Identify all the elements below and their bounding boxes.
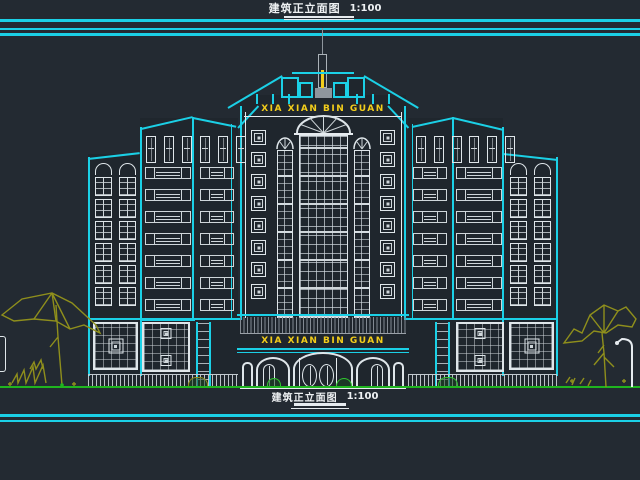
banded-window-row (413, 167, 502, 179)
band-window (413, 299, 447, 311)
banded-window-row (145, 277, 234, 289)
tree-right-icon (560, 295, 640, 390)
canopy-top-line (237, 314, 409, 316)
revolving-door-icon (302, 364, 317, 387)
tower-medallion (251, 174, 266, 189)
top-floor-window-group (469, 136, 515, 163)
banded-window-rows-right (413, 167, 502, 311)
stacked-window (510, 243, 527, 262)
stacked-window (119, 287, 136, 306)
flagpole-base-icon (315, 88, 332, 98)
band-window (456, 167, 502, 179)
band-window (200, 255, 234, 267)
revolving-door-icon (319, 364, 334, 387)
flagpole-antenna-icon (322, 28, 323, 55)
street-lamp-icon (618, 339, 632, 387)
medallion-column-left (251, 130, 266, 299)
sheet-border-line-top-3 (0, 33, 640, 36)
cad-elevation-canvas: 建筑正立面图 1:100 XIA XIAN BIN (0, 0, 640, 480)
tower-medallion (251, 152, 266, 167)
stacked-window (95, 177, 112, 196)
double-hung-window (487, 136, 497, 163)
tower-medallion (251, 262, 266, 277)
band-window (200, 167, 234, 179)
band-window (200, 211, 234, 223)
stacked-window (119, 265, 136, 284)
band-window (145, 233, 191, 245)
double-hung-window (182, 136, 192, 163)
podium-top-band (141, 318, 195, 321)
top-floor-window-group (416, 136, 462, 163)
band-window (200, 189, 234, 201)
outer-wing-edge-right (556, 157, 558, 376)
banded-window-row (145, 167, 234, 179)
band-window (200, 233, 234, 245)
tower-edge-right (404, 106, 406, 320)
stair-window-column (277, 150, 293, 318)
podium-medallion (475, 355, 486, 366)
banded-window-rows-left (145, 167, 234, 311)
tower-medallion (380, 240, 395, 255)
lamp-fragment-icon (0, 336, 6, 372)
band-window (456, 277, 502, 289)
stacked-window (534, 199, 551, 218)
parapet-block (299, 82, 313, 98)
band-window (413, 277, 447, 289)
stacked-window (534, 177, 551, 196)
medallion-column-right (380, 130, 395, 299)
stacked-window (510, 177, 527, 196)
tower-medallion (380, 152, 395, 167)
banded-window-row (413, 277, 502, 289)
tower-medallion (251, 284, 266, 299)
banded-window-row (413, 233, 502, 245)
title-underline-thin (284, 19, 354, 20)
tower-medallion (251, 218, 266, 233)
band-window (145, 277, 191, 289)
parapet-block (281, 77, 299, 98)
band-window (145, 189, 191, 201)
double-hung-window (505, 136, 515, 163)
arcade-arch (393, 362, 404, 388)
stacked-window (510, 221, 527, 240)
double-hung-window (200, 136, 210, 163)
band-window (200, 277, 234, 289)
double-hung-window (452, 136, 462, 163)
band-window (413, 255, 447, 267)
stacked-window-column (510, 177, 527, 306)
attic-tick (256, 94, 258, 104)
door-post (299, 358, 300, 388)
band-window (145, 167, 191, 179)
double-hung-window (434, 136, 444, 163)
tower-medallion (380, 174, 395, 189)
double-hung-window (469, 136, 479, 163)
podium-window (142, 322, 190, 372)
fanlight-small-icon (276, 137, 294, 150)
attic-tick (372, 94, 374, 104)
stacked-window (534, 287, 551, 306)
arched-window-top (119, 163, 136, 175)
stacked-window (510, 199, 527, 218)
double-hung-window (146, 136, 156, 163)
attic-tick (288, 94, 290, 104)
stacked-window (95, 243, 112, 262)
stacked-window (95, 265, 112, 284)
canopy-band-line (237, 348, 409, 350)
podium-window (456, 322, 504, 372)
band-window (413, 189, 447, 201)
tree-left-icon (0, 285, 110, 390)
arcade-arch (242, 362, 253, 388)
tower-medallion (251, 130, 266, 145)
band-window (145, 211, 191, 223)
stacked-window (510, 265, 527, 284)
band-window (456, 189, 502, 201)
band-window (200, 299, 234, 311)
sheet-border-line-top-2 (0, 28, 640, 30)
band-window (456, 211, 502, 223)
side-door (371, 364, 383, 388)
double-hung-window (236, 136, 246, 163)
drawing-title-bottom-text: 建筑正立面图 (272, 389, 338, 404)
parapet-top-line (292, 72, 354, 74)
band-window (145, 255, 191, 267)
band-window (413, 233, 447, 245)
stacked-window (119, 199, 136, 218)
banded-window-row (413, 255, 502, 267)
title-underline (284, 16, 354, 18)
drawing-title-bottom-scale: 1:100 (347, 391, 379, 402)
podium-window (509, 322, 554, 370)
curtain-wall-grid (299, 135, 348, 318)
banded-window-row (145, 211, 234, 223)
stacked-window-column (534, 177, 551, 306)
canopy-fringe (240, 317, 406, 334)
sheet-border-line-bottom-2 (0, 420, 640, 422)
podium-medallion (108, 339, 123, 354)
stacked-window (95, 221, 112, 240)
tower-medallion (380, 130, 395, 145)
drawing-title-top: 建筑正立面图 1:100 (230, 1, 420, 15)
double-hung-window (416, 136, 426, 163)
stacked-window-column (119, 177, 136, 306)
attic-tick (272, 94, 274, 104)
banded-window-row (145, 299, 234, 311)
banded-window-row (145, 255, 234, 267)
band-window (413, 167, 447, 179)
tower-edge-inner-right (401, 112, 402, 318)
podium-medallion (475, 328, 486, 339)
banded-window-row (413, 299, 502, 311)
tower-medallion (380, 196, 395, 211)
podium-medallion (524, 339, 539, 354)
tower-medallion (380, 262, 395, 277)
top-floor-window-group (200, 136, 246, 163)
band-window (145, 299, 191, 311)
drawing-title-top-text: 建筑正立面图 (269, 0, 341, 16)
arched-window-top (510, 163, 527, 175)
parapet-block (333, 82, 347, 98)
stacked-window (95, 199, 112, 218)
sheet-border-line-bottom-1 (0, 414, 640, 417)
hotel-sign-roof: XIA XIAN BIN GUAN (244, 104, 402, 114)
podium-medallion (161, 355, 172, 366)
band-window (456, 299, 502, 311)
arched-window-top (95, 163, 112, 175)
tower-medallion (380, 284, 395, 299)
stacked-window (534, 265, 551, 284)
stacked-window (119, 177, 136, 196)
podium-medallion (161, 328, 172, 339)
banded-window-row (413, 189, 502, 201)
attic-tick (356, 94, 358, 104)
band-window (413, 211, 447, 223)
banded-window-row (413, 211, 502, 223)
tower-medallion (251, 240, 266, 255)
tower-medallion (251, 196, 266, 211)
drawing-title-bottom: 建筑正立面图 1:100 (230, 390, 420, 403)
stacked-window (510, 287, 527, 306)
fanlight-small-icon (353, 137, 371, 150)
band-window (456, 255, 502, 267)
banded-window-row (145, 233, 234, 245)
drawing-title-top-scale: 1:100 (350, 3, 382, 14)
stacked-window (119, 221, 136, 240)
arched-window-top (534, 163, 551, 175)
stacked-window (119, 243, 136, 262)
top-floor-window-group (146, 136, 192, 163)
fanlight-arch-icon (296, 115, 351, 134)
podium-top-line-right (406, 318, 557, 320)
band-window (456, 233, 502, 245)
title-underline-thin (291, 408, 349, 409)
double-hung-window (164, 136, 174, 163)
stacked-window (534, 243, 551, 262)
title-underline (294, 403, 346, 406)
banded-window-row (145, 189, 234, 201)
double-hung-window (218, 136, 228, 163)
stair-window-column (354, 150, 370, 318)
hotel-sign-entrance: XIA XIAN BIN GUAN (244, 336, 402, 346)
attic-tick (388, 94, 390, 104)
tower-medallion (380, 218, 395, 233)
stacked-window (534, 221, 551, 240)
